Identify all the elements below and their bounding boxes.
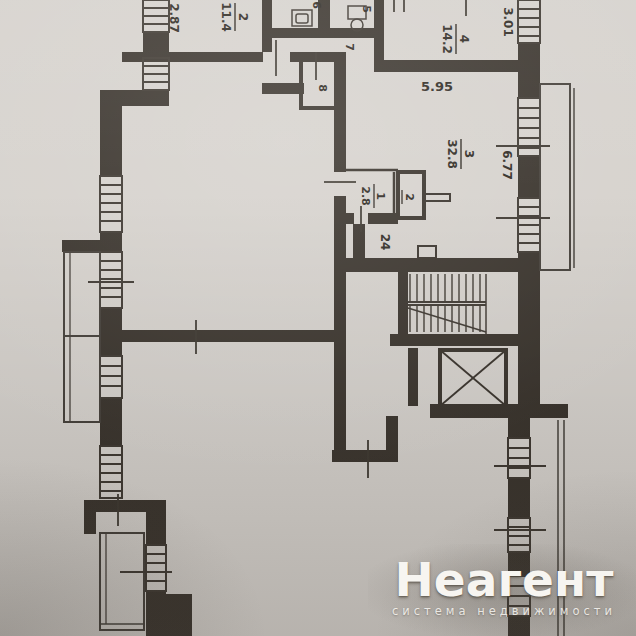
window	[508, 438, 530, 478]
room-number: 4	[457, 35, 471, 43]
floorplan-svg: 2 11.4 4 14.2 3 32.8 1 2.8 6 5 7 8 2	[0, 0, 636, 636]
interior-walls	[122, 0, 568, 462]
room-number-5: 5	[360, 5, 373, 13]
dimension-right-top: 3.01	[501, 7, 515, 37]
window	[100, 252, 122, 308]
window	[100, 446, 122, 498]
door-box	[418, 246, 436, 258]
window	[518, 0, 540, 43]
room-label-2: 2 11.4	[219, 2, 250, 32]
room-area: 11.4	[219, 2, 233, 32]
window	[518, 98, 540, 156]
svg-text:2: 2	[403, 193, 416, 201]
room-number: 3	[462, 150, 476, 158]
hall-label: 24	[378, 234, 392, 251]
floorplan-photo: 2 11.4 4 14.2 3 32.8 1 2.8 6 5 7 8 2	[0, 0, 636, 636]
room-number-8: 8	[316, 84, 329, 92]
sink-fixture	[292, 10, 312, 26]
shaft-label: 2	[402, 190, 416, 204]
window	[100, 356, 122, 398]
balcony-bottom-left	[100, 533, 144, 630]
window	[100, 176, 122, 232]
dimension-right-mid: 6.77	[500, 150, 514, 180]
window	[508, 518, 530, 552]
window	[518, 198, 540, 252]
room-label-1: 1 2.8	[359, 184, 387, 208]
window	[508, 576, 530, 616]
elevator-shaft	[440, 350, 506, 406]
window	[143, 58, 169, 90]
balcony-left	[64, 252, 100, 422]
room-number-6: 6	[310, 1, 323, 9]
window	[143, 0, 169, 32]
dimension-mid-width: 5.95	[421, 79, 453, 94]
dimension-left-top: 2.87	[167, 3, 181, 33]
room-label-4: 4 14.2	[440, 24, 471, 54]
room-area: 2.8	[359, 186, 372, 206]
window	[146, 545, 166, 591]
room-area: 32.8	[445, 139, 459, 169]
room-area: 14.2	[440, 24, 454, 54]
balcony-right-line	[558, 420, 564, 636]
room-label-3: 3 32.8	[445, 139, 476, 169]
loggia-right	[540, 84, 574, 270]
staircase	[408, 274, 486, 334]
room-number-7: 7	[343, 43, 356, 51]
room-number: 1	[374, 192, 387, 200]
room-number: 2	[236, 13, 250, 21]
